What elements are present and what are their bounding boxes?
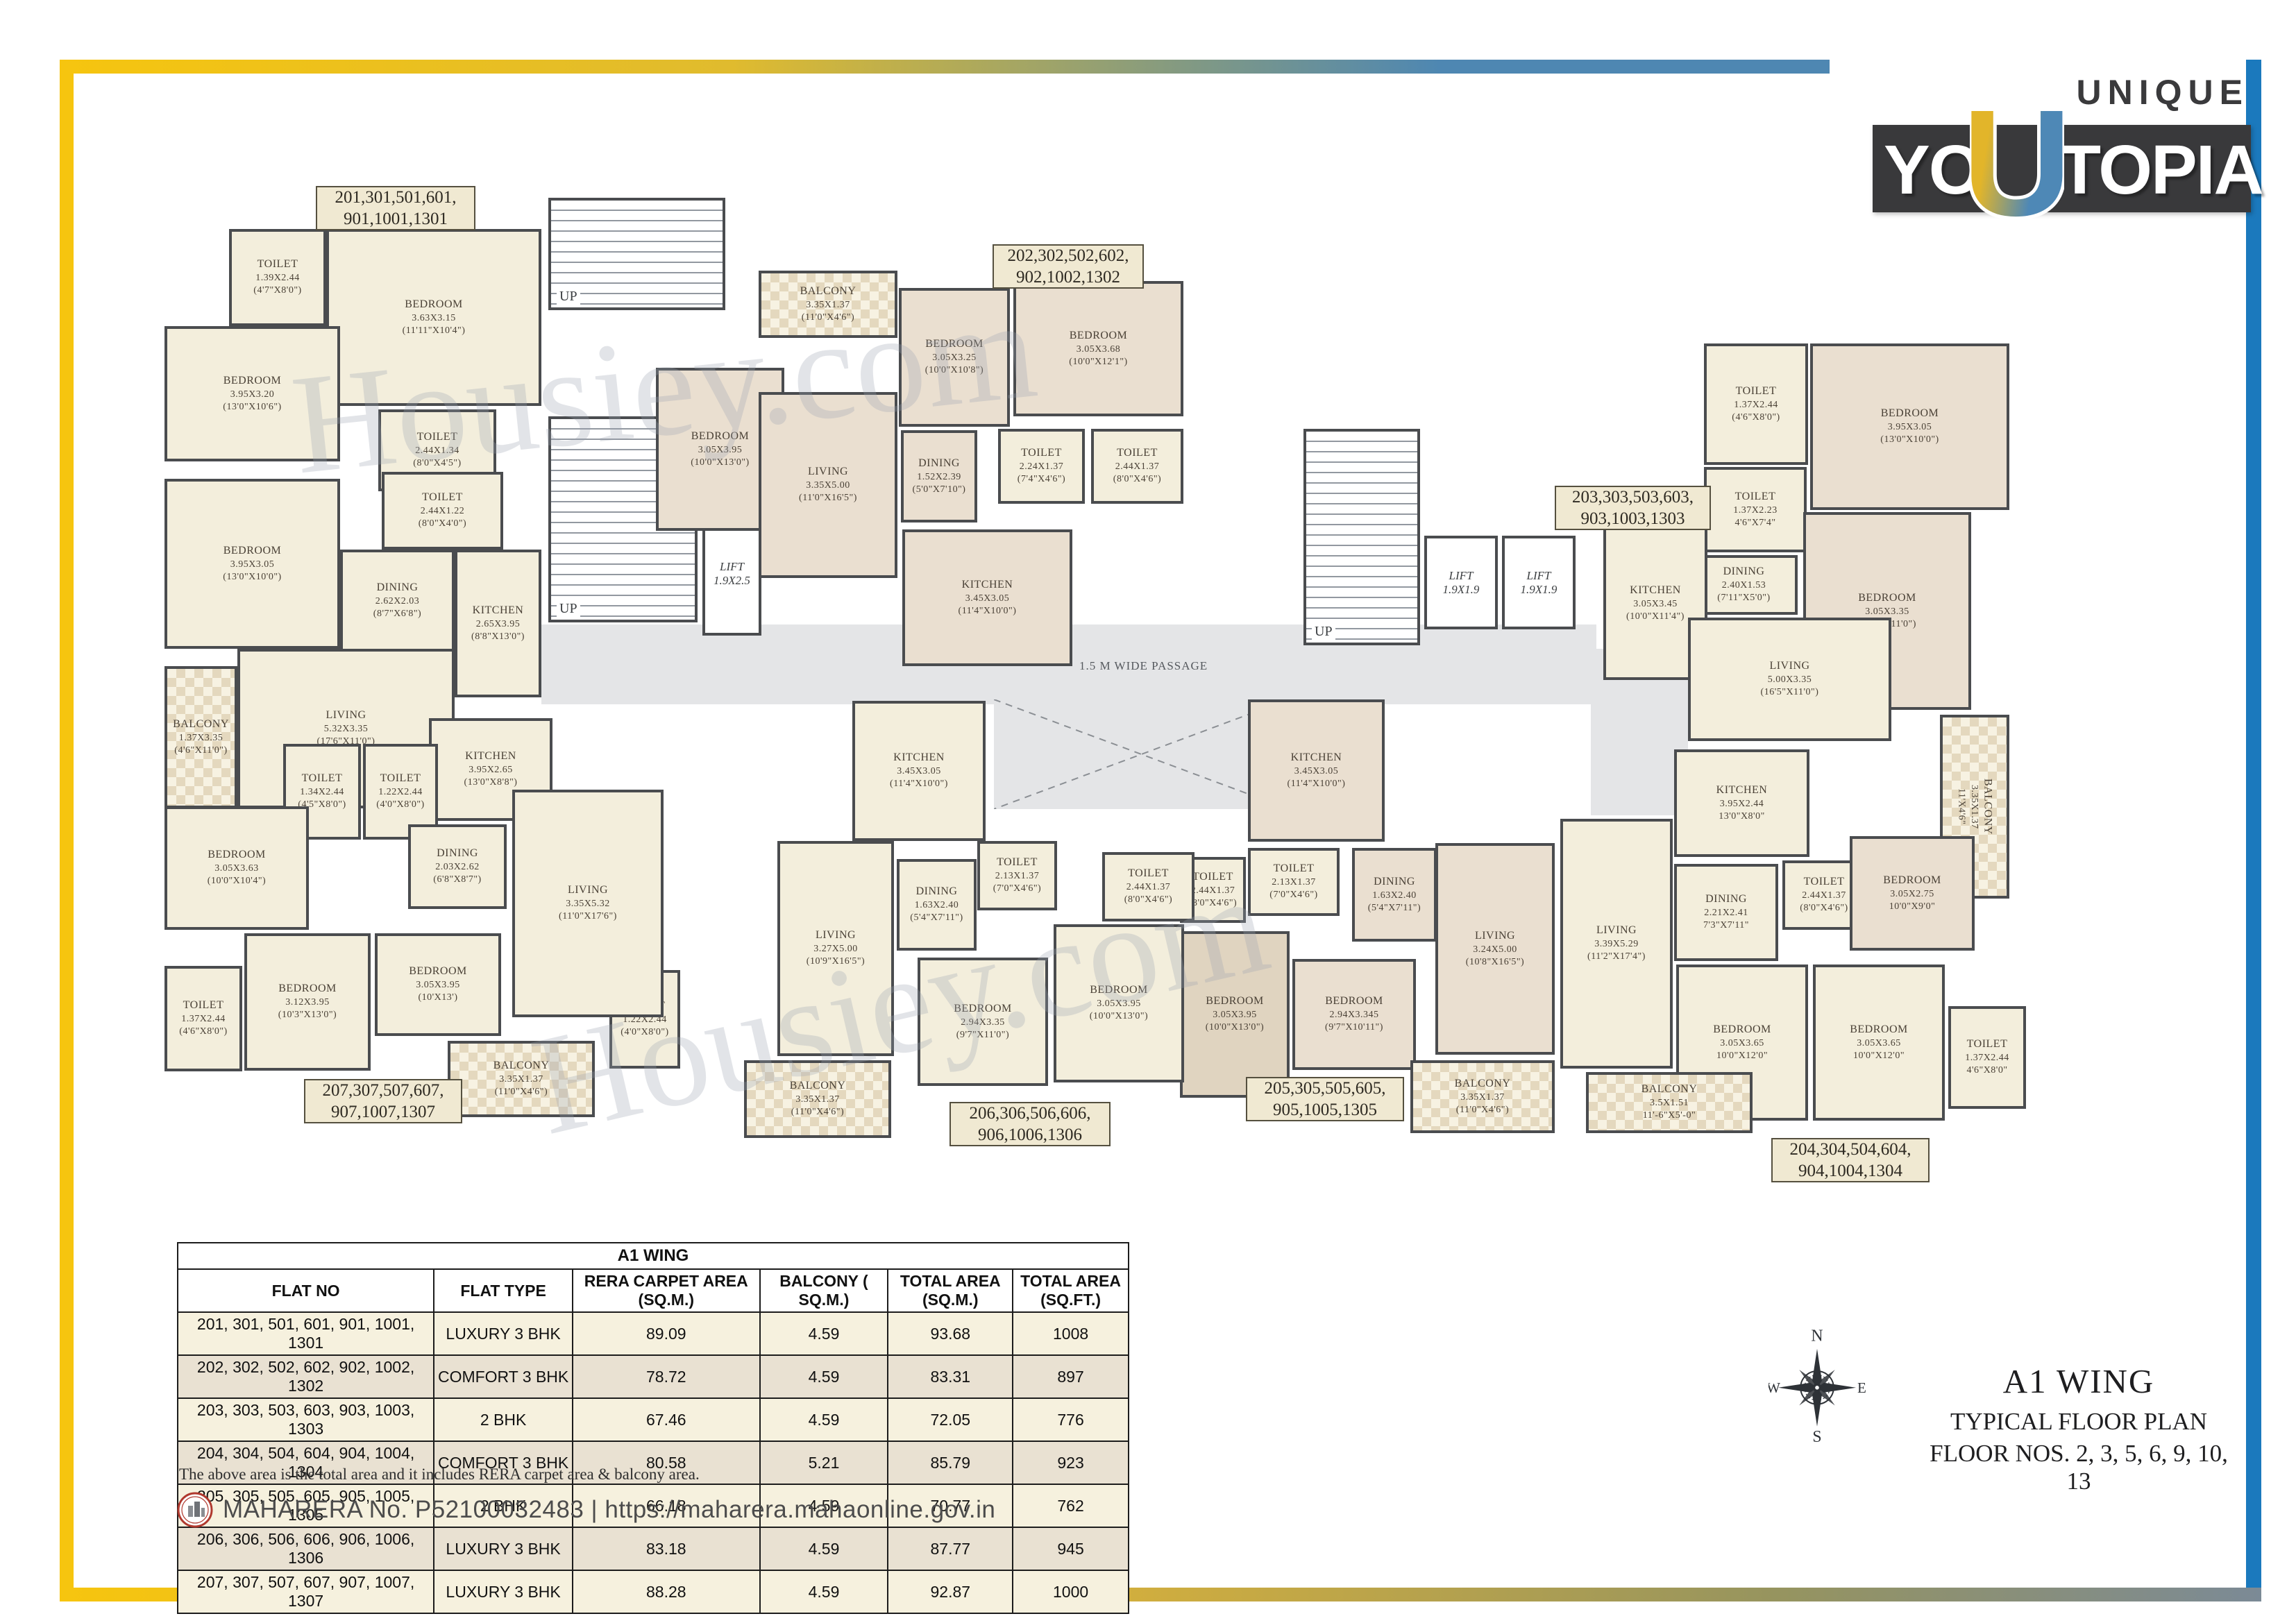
room-cell: KITCHEN3.45X3.05(11'4"X10'0")	[1248, 699, 1385, 842]
staircase-top-left: UP	[548, 198, 725, 310]
lift-right-2: LIFT1.9X1.9	[1502, 536, 1576, 629]
room-cell: BALCONY3.5X1.5111'-6"X5'-0"	[1586, 1072, 1753, 1133]
table-cell: LUXURY 3 BHK	[434, 1312, 573, 1355]
room-cell: BALCONY3.35X1.37(11'0"X4'6")	[1410, 1060, 1555, 1133]
service-shaft	[994, 699, 1289, 809]
table-cell: 1000	[1013, 1570, 1129, 1613]
table-cell: 92.87	[888, 1570, 1013, 1613]
header-cell: TOTAL AREA (SQ.FT.)	[1013, 1269, 1129, 1312]
room-cell: BEDROOM2.94X3.35(9'7"X11'0")	[918, 958, 1048, 1086]
table-cell: 776	[1013, 1398, 1129, 1441]
floor-plan-page: { "brand": {"unique":"UNIQUE","yo":"YO",…	[0, 0, 2296, 1623]
room-cell: KITCHEN3.45X3.05(11'4"X10'0")	[852, 701, 986, 841]
room-cell: BEDROOM3.05X2.7510'0"X9'0"	[1850, 836, 1975, 951]
table-cell: 945	[1013, 1527, 1129, 1570]
brand-logo-topia: TOPIA	[2059, 130, 2263, 210]
table-cell: 78.72	[573, 1355, 760, 1398]
svg-text:E: E	[1857, 1379, 1866, 1396]
room-cell: TOILET2.44X1.22(8'0"X4'0")	[382, 472, 503, 550]
passage-label: 1.5 M WIDE PASSAGE	[1079, 659, 1208, 673]
svg-text:U: U	[1970, 79, 2064, 246]
room-cell: TOILET2.13X1.37(7'0"X4'6")	[977, 841, 1057, 910]
flat-label-205: 205,305,505,605,905,1005,1305	[1246, 1077, 1404, 1121]
table-row: 203, 303, 503, 603, 903, 1003, 13032 BHK…	[178, 1398, 1129, 1441]
table-cell: 4.59	[760, 1398, 888, 1441]
maharera-badge-icon	[177, 1492, 213, 1528]
room-cell: BEDROOM2.94X3.345(9'7"X10'11")	[1292, 959, 1416, 1070]
table-cell: 4.59	[760, 1312, 888, 1355]
room-cell: DINING1.63X2.40(5'4"X7'11")	[1352, 848, 1437, 942]
wing-title: A1 WING	[1916, 1361, 2242, 1401]
room-cell: BALCONY1.37X3.35(4'6"X11'0")	[164, 666, 237, 808]
flat-label-202: 202,302,502,602,902,1002,1302	[993, 244, 1144, 289]
table-cell: LUXURY 3 BHK	[434, 1570, 573, 1613]
header-cell: BALCONY ( SQ.M.)	[760, 1269, 888, 1312]
table-cell: COMFORT 3 BHK	[434, 1355, 573, 1398]
table-cell: 83.31	[888, 1355, 1013, 1398]
flat-label-204: 204,304,504,604,904,1004,1304	[1771, 1138, 1930, 1182]
svg-text:S: S	[1812, 1428, 1821, 1445]
table-cell: 201, 301, 501, 601, 901, 1001, 1301	[178, 1312, 434, 1355]
table-cell: 897	[1013, 1355, 1129, 1398]
room-cell: LIVING3.24X5.00(10'8"X16'5")	[1435, 843, 1555, 1055]
table-row: 201, 301, 501, 601, 901, 1001, 1301LUXUR…	[178, 1312, 1129, 1355]
table-row: 202, 302, 502, 602, 902, 1002, 1302COMFO…	[178, 1355, 1129, 1398]
room-cell: BALCONY3.35X1.37(11'0"X4'6")	[759, 271, 897, 338]
table-cell: 1008	[1013, 1312, 1129, 1355]
header-cell: FLAT TYPE	[434, 1269, 573, 1312]
room-cell: TOILET1.37X2.44(4'6"X8'0")	[164, 966, 242, 1071]
room-cell: TOILET2.24X1.37(7'4"X4'6")	[998, 429, 1085, 504]
table-cell: 83.18	[573, 1527, 760, 1570]
header-cell: RERA CARPET AREA (SQ.M.)	[573, 1269, 760, 1312]
room-cell: BEDROOM3.05X3.63(10'0"X10'4")	[164, 806, 309, 930]
plan-type: TYPICAL FLOOR PLAN	[1916, 1408, 2242, 1436]
rera-text: MAHARERA No. P52100032483 | https://maha…	[223, 1496, 995, 1524]
room-cell: DINING1.52X2.39(5'0"X7'10")	[901, 430, 977, 522]
room-cell: DINING2.03X2.62(6'8"X8'7")	[408, 824, 507, 909]
svg-text:W: W	[1769, 1379, 1780, 1396]
room-cell: BEDROOM3.05X3.95(10'0"X13'0")	[1180, 931, 1290, 1098]
shaft-cross-icon	[994, 699, 1289, 809]
brand-unique: UNIQUE	[2041, 72, 2249, 112]
flat-label-203: 203,303,503,603,903,1003,1303	[1555, 486, 1711, 530]
room-cell: BEDROOM3.12X3.95(10'3"X13'0")	[244, 933, 371, 1071]
table-cell: 85.79	[888, 1441, 1013, 1484]
room-cell: TOILET1.37X2.44(4'6"X8'0")	[1704, 343, 1808, 465]
room-cell: BEDROOM3.05X3.95(10'0"X13'0")	[1054, 924, 1184, 1082]
table-cell: 202, 302, 502, 602, 902, 1002, 1302	[178, 1355, 434, 1398]
table-cell: 207, 307, 507, 607, 907, 1007, 1307	[178, 1570, 434, 1613]
flat-label-201: 201,301,501,601,901,1001,1301	[316, 186, 475, 230]
brand-logo-u-icon: U	[1970, 72, 2064, 246]
room-cell: LIVING3.35X5.32(11'0"X17'6")	[512, 790, 664, 1017]
table-cell: 67.46	[573, 1398, 760, 1441]
room-cell: DINING1.63X2.40(5'4"X7'11")	[897, 859, 977, 951]
table-cell: 203, 303, 503, 603, 903, 1003, 1303	[178, 1398, 434, 1441]
room-cell: BEDROOM3.05X3.95(10'X13')	[375, 933, 501, 1036]
area-table: A1 WING FLAT NO FLAT TYPE RERA CARPET AR…	[177, 1242, 1129, 1614]
table-cell: 89.09	[573, 1312, 760, 1355]
flat-label-207: 207,307,507,607,907,1007,1307	[304, 1079, 462, 1123]
table-cell: 4.59	[760, 1355, 888, 1398]
svg-text:N: N	[1811, 1327, 1823, 1345]
flat-label-206: 206,306,506,606,906,1006,1306	[949, 1102, 1111, 1146]
room-cell: KITCHEN2.65X3.95(8'8"X13'0")	[455, 550, 541, 697]
table-cell: 762	[1013, 1484, 1129, 1527]
frame-top	[60, 60, 1830, 74]
table-cell: 93.68	[888, 1312, 1013, 1355]
floor-numbers: FLOOR NOS. 2, 3, 5, 6, 9, 10, 13	[1916, 1440, 2242, 1495]
room-cell: BEDROOM3.95X3.05(13'0"X10'0")	[164, 479, 340, 649]
frame-left	[60, 60, 74, 1601]
table-row: 207, 307, 507, 607, 907, 1007, 1307LUXUR…	[178, 1570, 1129, 1613]
room-cell: TOILET2.44X1.37(8'0"X4'6")	[1102, 852, 1195, 921]
brand-logo-yo: YO	[1884, 130, 1981, 210]
table-note: The above area is the total area and it …	[179, 1465, 700, 1484]
header-cell: FLAT NO	[178, 1269, 434, 1312]
room-cell: BEDROOM3.63X3.15(11'11"X10'4")	[326, 229, 541, 406]
room-cell: DINING2.21X2.417'3"X7'11"	[1674, 864, 1778, 961]
table-cell: 206, 306, 506, 606, 906, 1006, 1306	[178, 1527, 434, 1570]
table-cell: 72.05	[888, 1398, 1013, 1441]
room-cell: BEDROOM3.05X3.68(10'0"X12'1")	[1013, 281, 1183, 416]
table-cell: 923	[1013, 1441, 1129, 1484]
room-cell: TOILET2.44X1.37(8'0"X4'6")	[1091, 429, 1183, 504]
table-cell: 88.28	[573, 1570, 760, 1613]
room-cell: TOILET2.13X1.37(7'0"X4'6")	[1248, 848, 1340, 916]
rera-line: MAHARERA No. P52100032483 | https://maha…	[177, 1492, 995, 1528]
room-cell: BEDROOM3.05X3.25(10'0"X10'8")	[899, 288, 1010, 427]
table-header-row: FLAT NO FLAT TYPE RERA CARPET AREA (SQ.M…	[178, 1269, 1129, 1312]
room-cell: TOILET1.39X2.44(4'7"X8'0")	[229, 229, 326, 326]
room-cell: BEDROOM3.95X3.05(13'0"X10'0")	[1810, 343, 2009, 510]
staircase-right: UP	[1303, 429, 1420, 645]
room-cell: BEDROOM3.05X3.6510'0"X12'0"	[1813, 965, 1945, 1121]
room-cell: BALCONY3.35X1.37(11'0"X4'6")	[448, 1041, 595, 1117]
room-cell: DINING2.62X2.03(8'7"X6'8")	[340, 550, 455, 652]
room-cell: LIVING3.35X5.00(11'0"X16'5")	[759, 392, 897, 578]
frame-right	[2246, 60, 2261, 1601]
room-cell: TOILET1.37X2.444'6"X8'0"	[1948, 1006, 2026, 1109]
table-cell: 4.59	[760, 1527, 888, 1570]
room-cell: KITCHEN3.45X3.05(11'4"X10'0")	[902, 529, 1072, 666]
lift-right-1: LIFT1.9X1.9	[1424, 536, 1498, 629]
room-cell: KITCHEN3.95X2.4413'0"X8'0"	[1674, 749, 1809, 857]
room-cell: BALCONY3.35X1.37(11'0"X4'6")	[744, 1060, 891, 1138]
room-cell: LIVING5.00X3.35(16'5"X11'0")	[1688, 618, 1891, 741]
room-cell: LIVING3.39X5.29(11'2"X17'4")	[1560, 819, 1673, 1069]
header-cell: TOTAL AREA (SQ.M.)	[888, 1269, 1013, 1312]
table-cell: LUXURY 3 BHK	[434, 1527, 573, 1570]
table-cell: 5.21	[760, 1441, 888, 1484]
title-block: A1 WING TYPICAL FLOOR PLAN FLOOR NOS. 2,…	[1916, 1361, 2242, 1495]
room-cell: BEDROOM3.95X3.20(13'0"X10'6")	[164, 326, 340, 461]
room-cell: TOILET1.37X2.234'6"X7'4"	[1704, 467, 1807, 552]
compass-icon: N E S W	[1769, 1327, 1866, 1445]
table-title: A1 WING	[178, 1243, 1129, 1269]
table-cell: 2 BHK	[434, 1398, 573, 1441]
table-cell: 87.77	[888, 1527, 1013, 1570]
table-row: 206, 306, 506, 606, 906, 1006, 1306LUXUR…	[178, 1527, 1129, 1570]
table-title-row: A1 WING	[178, 1243, 1129, 1269]
table-cell: 4.59	[760, 1570, 888, 1613]
room-cell: LIVING3.27X5.00(10'9"X16'5")	[777, 841, 894, 1056]
